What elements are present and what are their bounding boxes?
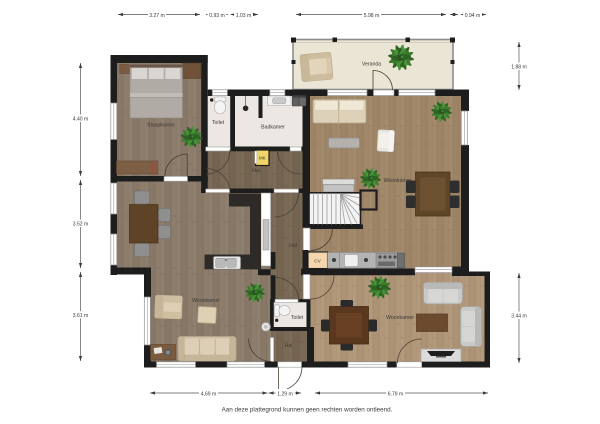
svg-text:1.03 m: 1.03 m: [236, 13, 252, 19]
svg-text:0.93 m: 0.93 m: [209, 13, 225, 19]
svg-text:Badkamer: Badkamer: [261, 125, 285, 131]
svg-text:Slaapkamer: Slaapkamer: [147, 123, 175, 129]
svg-text:Woonkamer: Woonkamer: [192, 298, 220, 304]
svg-text:Toilet: Toilet: [291, 315, 304, 321]
svg-text:5.98 m: 5.98 m: [364, 13, 380, 19]
svg-text:Hal: Hal: [285, 343, 293, 349]
svg-text:Woonkamer: Woonkamer: [386, 315, 414, 321]
svg-text:3.44 m: 3.44 m: [511, 314, 527, 320]
svg-text:3.61 m: 3.61 m: [73, 313, 89, 319]
svg-text:0.94 m: 0.94 m: [465, 13, 481, 19]
svg-text:Woonkamer: Woonkamer: [384, 178, 412, 184]
svg-text:4.69 m: 4.69 m: [201, 391, 217, 397]
svg-text:1.29 m: 1.29 m: [277, 391, 293, 397]
svg-text:Toilet: Toilet: [212, 120, 225, 126]
svg-text:Veranda: Veranda: [362, 62, 381, 68]
svg-text:MK: MK: [259, 156, 267, 161]
svg-text:Aan deze plattegrond kunnen ge: Aan deze plattegrond kunnen geen rechten…: [222, 407, 393, 414]
svg-text:1.88 m: 1.88 m: [511, 65, 527, 71]
svg-text:CV: CV: [314, 259, 321, 264]
svg-text:3.52 m: 3.52 m: [73, 222, 89, 228]
svg-text:Hal: Hal: [252, 168, 260, 174]
svg-text:6.79 m: 6.79 m: [388, 391, 404, 397]
svg-text:4.40 m: 4.40 m: [73, 117, 89, 123]
svg-text:Hal: Hal: [289, 243, 297, 249]
svg-text:3.27 m: 3.27 m: [149, 13, 165, 19]
